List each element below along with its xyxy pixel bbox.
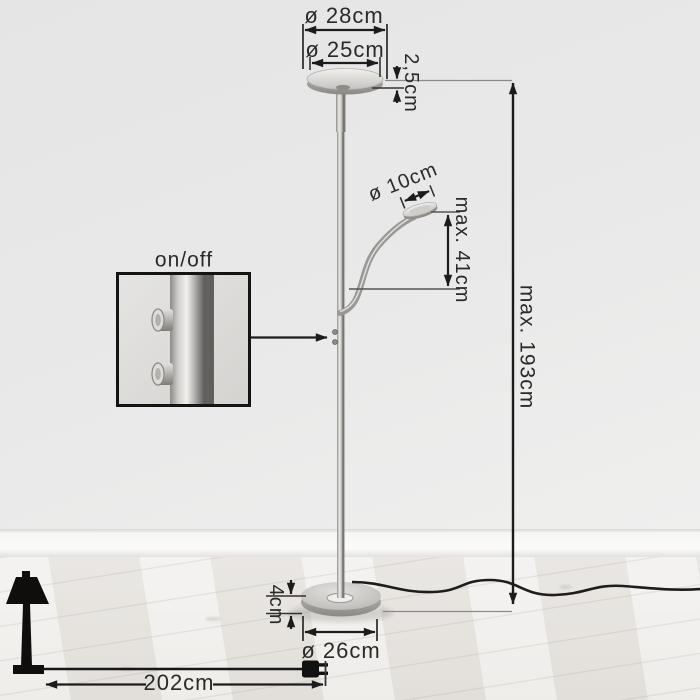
onoff-label: on/off <box>155 250 213 271</box>
dim-label-reading-head-height: max. 41cm <box>452 197 472 304</box>
dim-label-head-outer-diameter: ø 28cm <box>304 5 383 27</box>
onoff-switch-knob <box>333 340 338 345</box>
dim-label-head-inner-diameter: ø 25cm <box>305 39 384 61</box>
dim-label-total-height: max. 193cm <box>517 285 538 409</box>
product-dimension-image: ø 28cm ø 25cm 2,5cm ø 10cm max. 41cm max… <box>0 0 700 700</box>
dim-head-thickness <box>372 66 512 103</box>
reading-lamp-head <box>402 200 439 223</box>
onoff-inset-photo <box>119 275 248 404</box>
lamp-pole <box>333 90 346 598</box>
onoff-switch-knob <box>333 330 338 335</box>
main-lamp-head <box>307 69 383 95</box>
table-lamp-icon <box>6 571 49 674</box>
dim-label-cord-length: 202cm <box>143 672 214 694</box>
dim-label-base-height: 4cm <box>266 585 286 626</box>
dim-total-height <box>383 83 513 612</box>
power-cord <box>352 580 700 595</box>
floor-lamp <box>289 69 700 623</box>
annotation-canvas <box>0 0 700 700</box>
reading-arm <box>340 216 414 313</box>
dim-label-head-thickness: 2,5cm <box>401 53 421 112</box>
dim-label-base-diameter: ø 26cm <box>301 640 380 662</box>
power-plug-icon <box>302 661 328 678</box>
